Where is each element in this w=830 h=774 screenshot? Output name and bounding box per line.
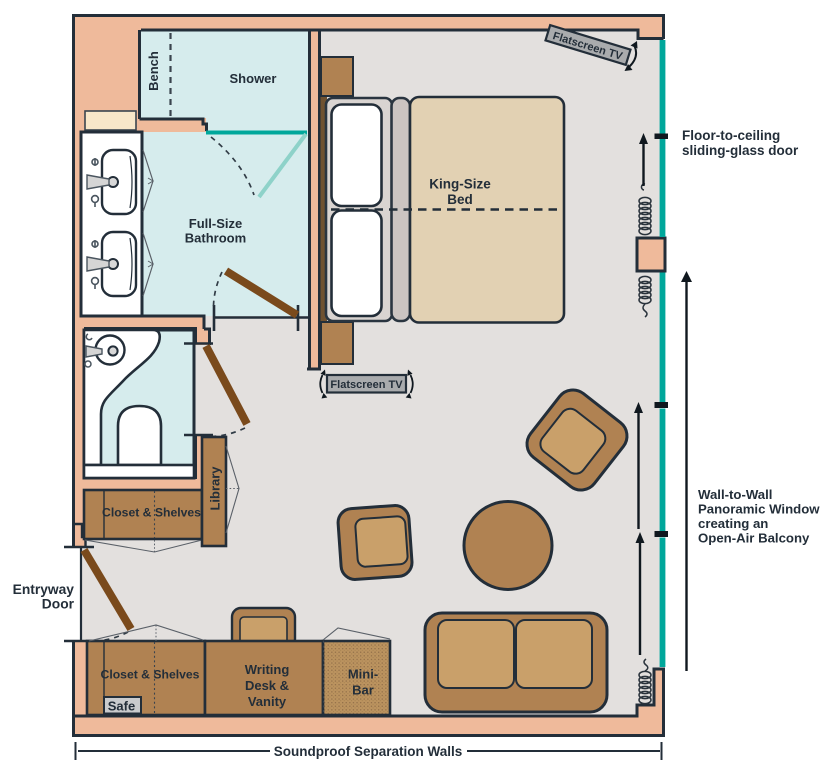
svg-text:Shower: Shower bbox=[230, 71, 277, 86]
svg-text:King-Size: King-Size bbox=[429, 177, 491, 192]
svg-text:Desk &: Desk & bbox=[245, 678, 289, 693]
svg-text:Writing: Writing bbox=[245, 662, 290, 677]
svg-text:Floor-to-ceiling: Floor-to-ceiling bbox=[682, 128, 780, 143]
svg-text:Door: Door bbox=[42, 597, 75, 612]
svg-text:Soundproof Separation Walls: Soundproof Separation Walls bbox=[274, 744, 463, 759]
svg-text:sliding-glass door: sliding-glass door bbox=[682, 143, 799, 158]
svg-text:Safe: Safe bbox=[108, 699, 135, 714]
svg-text:Entryway: Entryway bbox=[13, 582, 75, 597]
svg-text:Panoramic Window: Panoramic Window bbox=[698, 502, 820, 517]
svg-text:Flatscreen TV: Flatscreen TV bbox=[330, 379, 403, 391]
svg-text:Vanity: Vanity bbox=[248, 694, 287, 709]
svg-text:Bench: Bench bbox=[146, 51, 161, 91]
svg-text:Closet & Shelves: Closet & Shelves bbox=[101, 668, 200, 682]
svg-text:Mini-: Mini- bbox=[348, 667, 378, 682]
svg-text:Wall-to-Wall: Wall-to-Wall bbox=[698, 487, 772, 502]
svg-text:Library: Library bbox=[208, 466, 223, 511]
svg-text:creating an: creating an bbox=[698, 516, 768, 531]
svg-text:Bar: Bar bbox=[352, 683, 374, 698]
svg-text:Bathroom: Bathroom bbox=[185, 231, 246, 246]
svg-text:Full-Size: Full-Size bbox=[189, 216, 242, 231]
svg-text:Bed: Bed bbox=[447, 192, 473, 207]
svg-text:Open-Air Balcony: Open-Air Balcony bbox=[698, 531, 810, 546]
svg-text:Closet & Shelves: Closet & Shelves bbox=[102, 506, 201, 520]
